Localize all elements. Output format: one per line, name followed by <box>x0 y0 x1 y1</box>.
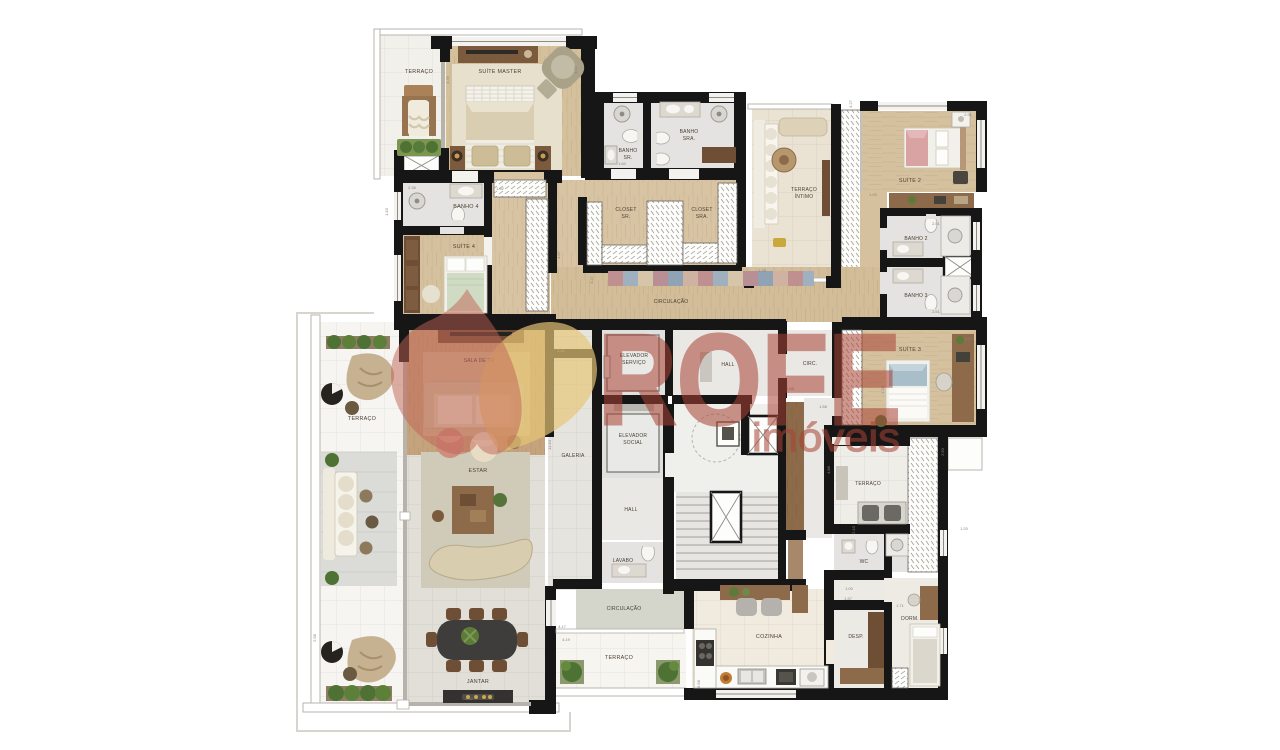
svg-text:SUÍTE 4: SUÍTE 4 <box>453 243 475 250</box>
svg-text:2.58: 2.58 <box>312 633 317 642</box>
svg-text:SRA.: SRA. <box>683 136 695 142</box>
svg-text:CLOSET: CLOSET <box>691 207 712 213</box>
svg-text:JANTAR: JANTAR <box>467 679 489 685</box>
svg-text:TERRAÇO: TERRAÇO <box>855 481 881 487</box>
svg-text:3.36: 3.36 <box>445 75 450 84</box>
svg-text:TERRAÇO: TERRAÇO <box>405 69 433 75</box>
svg-text:11.94: 11.94 <box>547 439 552 449</box>
svg-text:SUÍTE MASTER: SUÍTE MASTER <box>478 68 521 75</box>
svg-text:SRA.: SRA. <box>696 214 708 220</box>
svg-text:1.60: 1.60 <box>618 161 627 166</box>
svg-text:BANHO 4: BANHO 4 <box>453 204 479 210</box>
svg-text:4.52: 4.52 <box>573 65 578 74</box>
svg-text:4.32: 4.32 <box>465 696 474 701</box>
svg-text:2.75: 2.75 <box>758 268 767 273</box>
svg-text:1.92: 1.92 <box>496 186 505 191</box>
svg-text:ÍNTIMO: ÍNTIMO <box>795 193 814 200</box>
svg-text:4.88: 4.88 <box>826 465 831 474</box>
svg-text:1.93: 1.93 <box>869 192 878 197</box>
svg-text:1.43: 1.43 <box>384 207 389 216</box>
svg-text:4.17: 4.17 <box>558 624 567 629</box>
svg-text:imóveis: imóveis <box>752 416 900 460</box>
svg-text:TERRAÇO: TERRAÇO <box>605 655 633 661</box>
svg-text:CIRCULAÇÃO: CIRCULAÇÃO <box>654 298 689 305</box>
svg-text:SUÍTE 3: SUÍTE 3 <box>899 346 921 353</box>
svg-text:1.37: 1.37 <box>844 596 853 601</box>
svg-text:LAVABO: LAVABO <box>613 558 633 564</box>
svg-text:BANHO: BANHO <box>680 129 699 135</box>
svg-text:SR.: SR. <box>622 214 631 220</box>
svg-text:1.20: 1.20 <box>960 526 969 531</box>
svg-text:4.27: 4.27 <box>848 99 853 108</box>
svg-text:WC: WC <box>860 559 869 565</box>
svg-text:TERRAÇO: TERRAÇO <box>791 187 817 193</box>
svg-text:COZINHA: COZINHA <box>756 634 782 640</box>
svg-text:TERRAÇO: TERRAÇO <box>348 416 376 422</box>
svg-text:6.58: 6.58 <box>696 679 701 688</box>
svg-text:DORM.: DORM. <box>901 616 919 622</box>
svg-text:2.91: 2.91 <box>964 112 973 117</box>
svg-text:2.51: 2.51 <box>932 221 941 226</box>
svg-text:BANHO 2: BANHO 2 <box>904 236 927 242</box>
svg-text:BANHO 3: BANHO 3 <box>904 293 927 299</box>
svg-text:2.51: 2.51 <box>932 309 941 314</box>
svg-text:3.22: 3.22 <box>964 336 973 341</box>
svg-text:4.27: 4.27 <box>589 275 594 284</box>
svg-text:SUÍTE 2: SUÍTE 2 <box>899 177 921 184</box>
svg-text:1.00: 1.00 <box>845 586 854 591</box>
svg-text:1.71: 1.71 <box>896 603 905 608</box>
svg-text:HALL: HALL <box>624 507 637 513</box>
svg-text:ESTAR: ESTAR <box>469 468 488 474</box>
svg-text:2.90: 2.90 <box>940 447 945 456</box>
svg-text:2.36: 2.36 <box>408 185 417 190</box>
svg-text:4.87: 4.87 <box>556 250 561 259</box>
svg-text:GALERIA: GALERIA <box>561 453 585 459</box>
svg-text:2.10: 2.10 <box>851 525 856 534</box>
svg-text:BANHO: BANHO <box>619 148 638 154</box>
svg-text:CLOSET: CLOSET <box>615 207 636 213</box>
svg-text:DESP.: DESP. <box>848 634 863 640</box>
svg-text:4.19: 4.19 <box>562 637 571 642</box>
svg-text:CIRCULAÇÃO: CIRCULAÇÃO <box>607 605 642 612</box>
